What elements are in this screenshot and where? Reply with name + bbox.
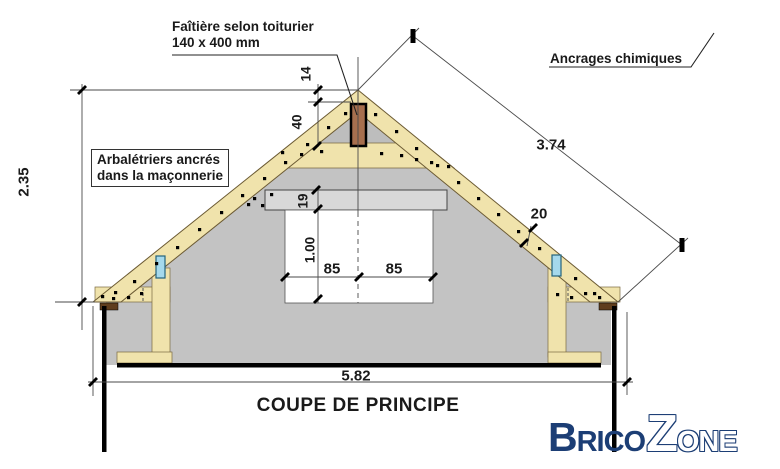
ridge-label: Faîtière selon toiturier 140 x 400 mm (172, 19, 314, 51)
brand-logo: BricoZone (548, 412, 737, 464)
lintel (265, 190, 447, 210)
rafters-note: Arbalétriers ancrés dans la maçonnerie (91, 149, 229, 187)
dim-opening-height: 1.00 (303, 237, 318, 263)
dim-opening-left: 85 (324, 261, 341, 278)
ridge-label-line2: 140 x 400 mm (172, 35, 314, 51)
ridge-label-line1: Faîtière selon toiturier (172, 19, 314, 35)
ridge-beam (351, 104, 366, 146)
technical-drawing-page: Faîtière selon toiturier 140 x 400 mm An… (0, 0, 780, 469)
dim-opening-right: 85 (386, 261, 403, 278)
dim-rafter-depth: 20 (531, 206, 548, 223)
drawing-title: COUPE DE PRINCIPE (257, 395, 460, 417)
brand-logo-zone: Zone (646, 412, 737, 464)
dim-lintel-height: 19 (296, 193, 311, 208)
brand-logo-brico: Brico (548, 415, 645, 464)
rafters-note-line2: dans la maçonnerie (97, 168, 223, 184)
dim-ridge-height: 40 (290, 114, 305, 129)
rafters-note-line1: Arbalétriers ancrés (97, 152, 223, 168)
dim-left-height: 2.35 (16, 167, 33, 196)
anchor-right (552, 255, 561, 276)
dim-slope-length: 3.74 (536, 137, 565, 154)
dim-ridge-offset: 14 (299, 66, 314, 81)
anchor-left (156, 256, 165, 278)
dim-total-width: 5.82 (341, 368, 370, 385)
chemical-anchors-label: Ancrages chimiques (550, 51, 682, 67)
